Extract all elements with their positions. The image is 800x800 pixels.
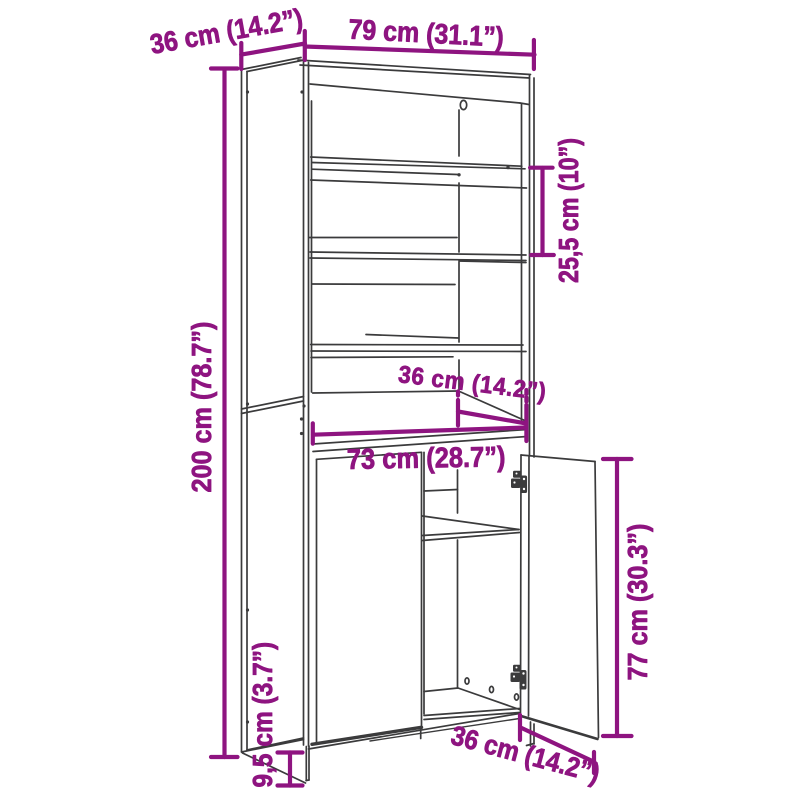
svg-text:73 cm (28.7”): 73 cm (28.7”) [347,440,506,475]
svg-text:77 cm (30.3”): 77 cm (30.3”) [622,524,654,681]
svg-text:25,5 cm (10”): 25,5 cm (10”) [554,138,584,283]
svg-text:200 cm (78.7”): 200 cm (78.7”) [186,322,218,493]
svg-text:9,5 cm (3.7”): 9,5 cm (3.7”) [247,642,279,788]
